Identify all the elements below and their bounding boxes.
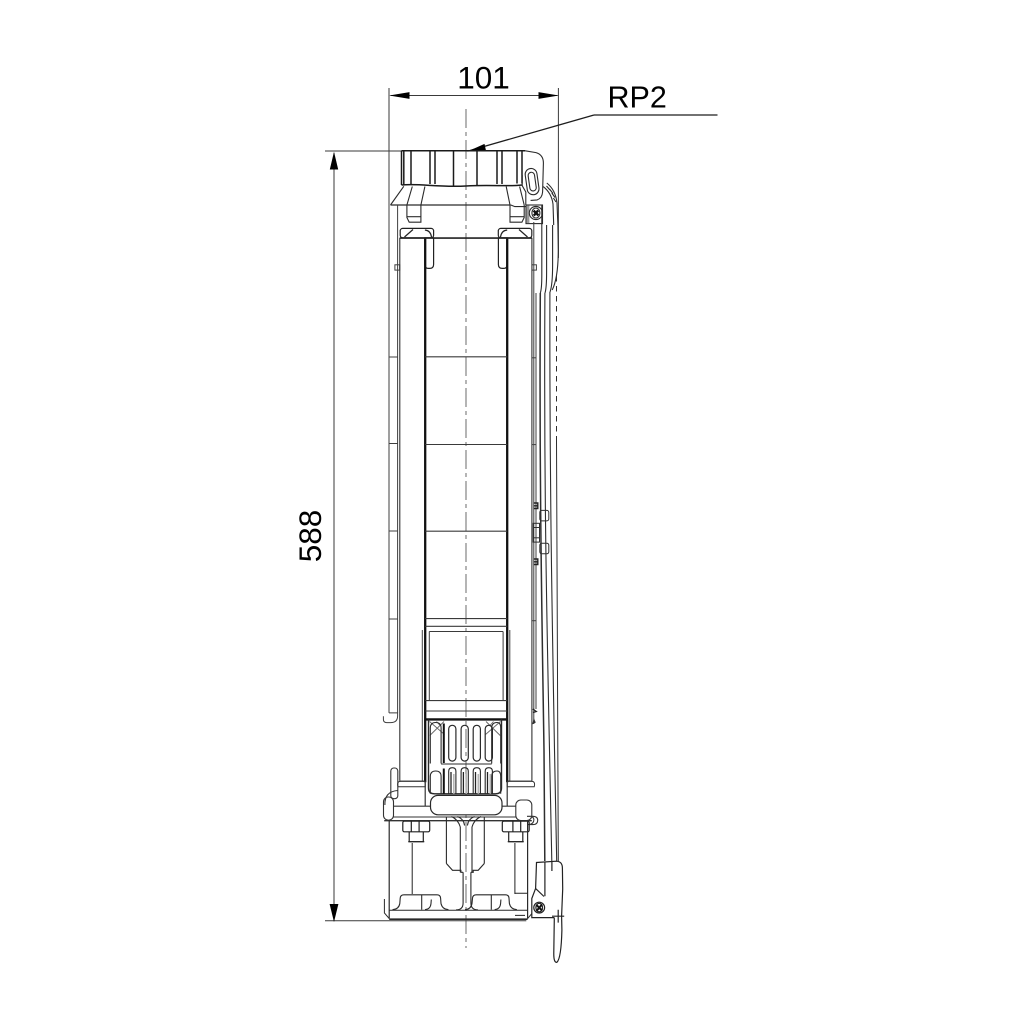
svg-text:RP2: RP2 <box>608 81 667 115</box>
svg-text:588: 588 <box>292 510 328 563</box>
svg-text:101: 101 <box>457 60 510 96</box>
